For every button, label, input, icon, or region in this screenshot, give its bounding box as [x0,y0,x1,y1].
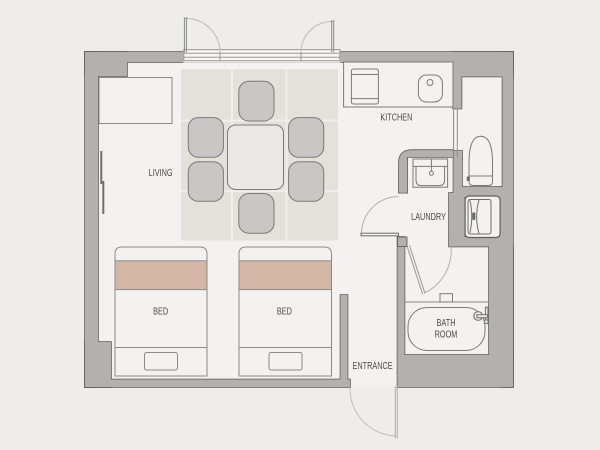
svg-text:KITCHEN: KITCHEN [380,111,412,122]
svg-text:LIVING: LIVING [149,167,173,178]
svg-text:BATH: BATH [437,317,456,328]
svg-text:ENTRANCE: ENTRANCE [353,360,393,371]
svg-text:BED: BED [277,305,292,316]
svg-text:BED: BED [153,305,168,316]
svg-text:LAUNDRY: LAUNDRY [411,211,446,222]
svg-text:ROOM: ROOM [435,328,458,339]
